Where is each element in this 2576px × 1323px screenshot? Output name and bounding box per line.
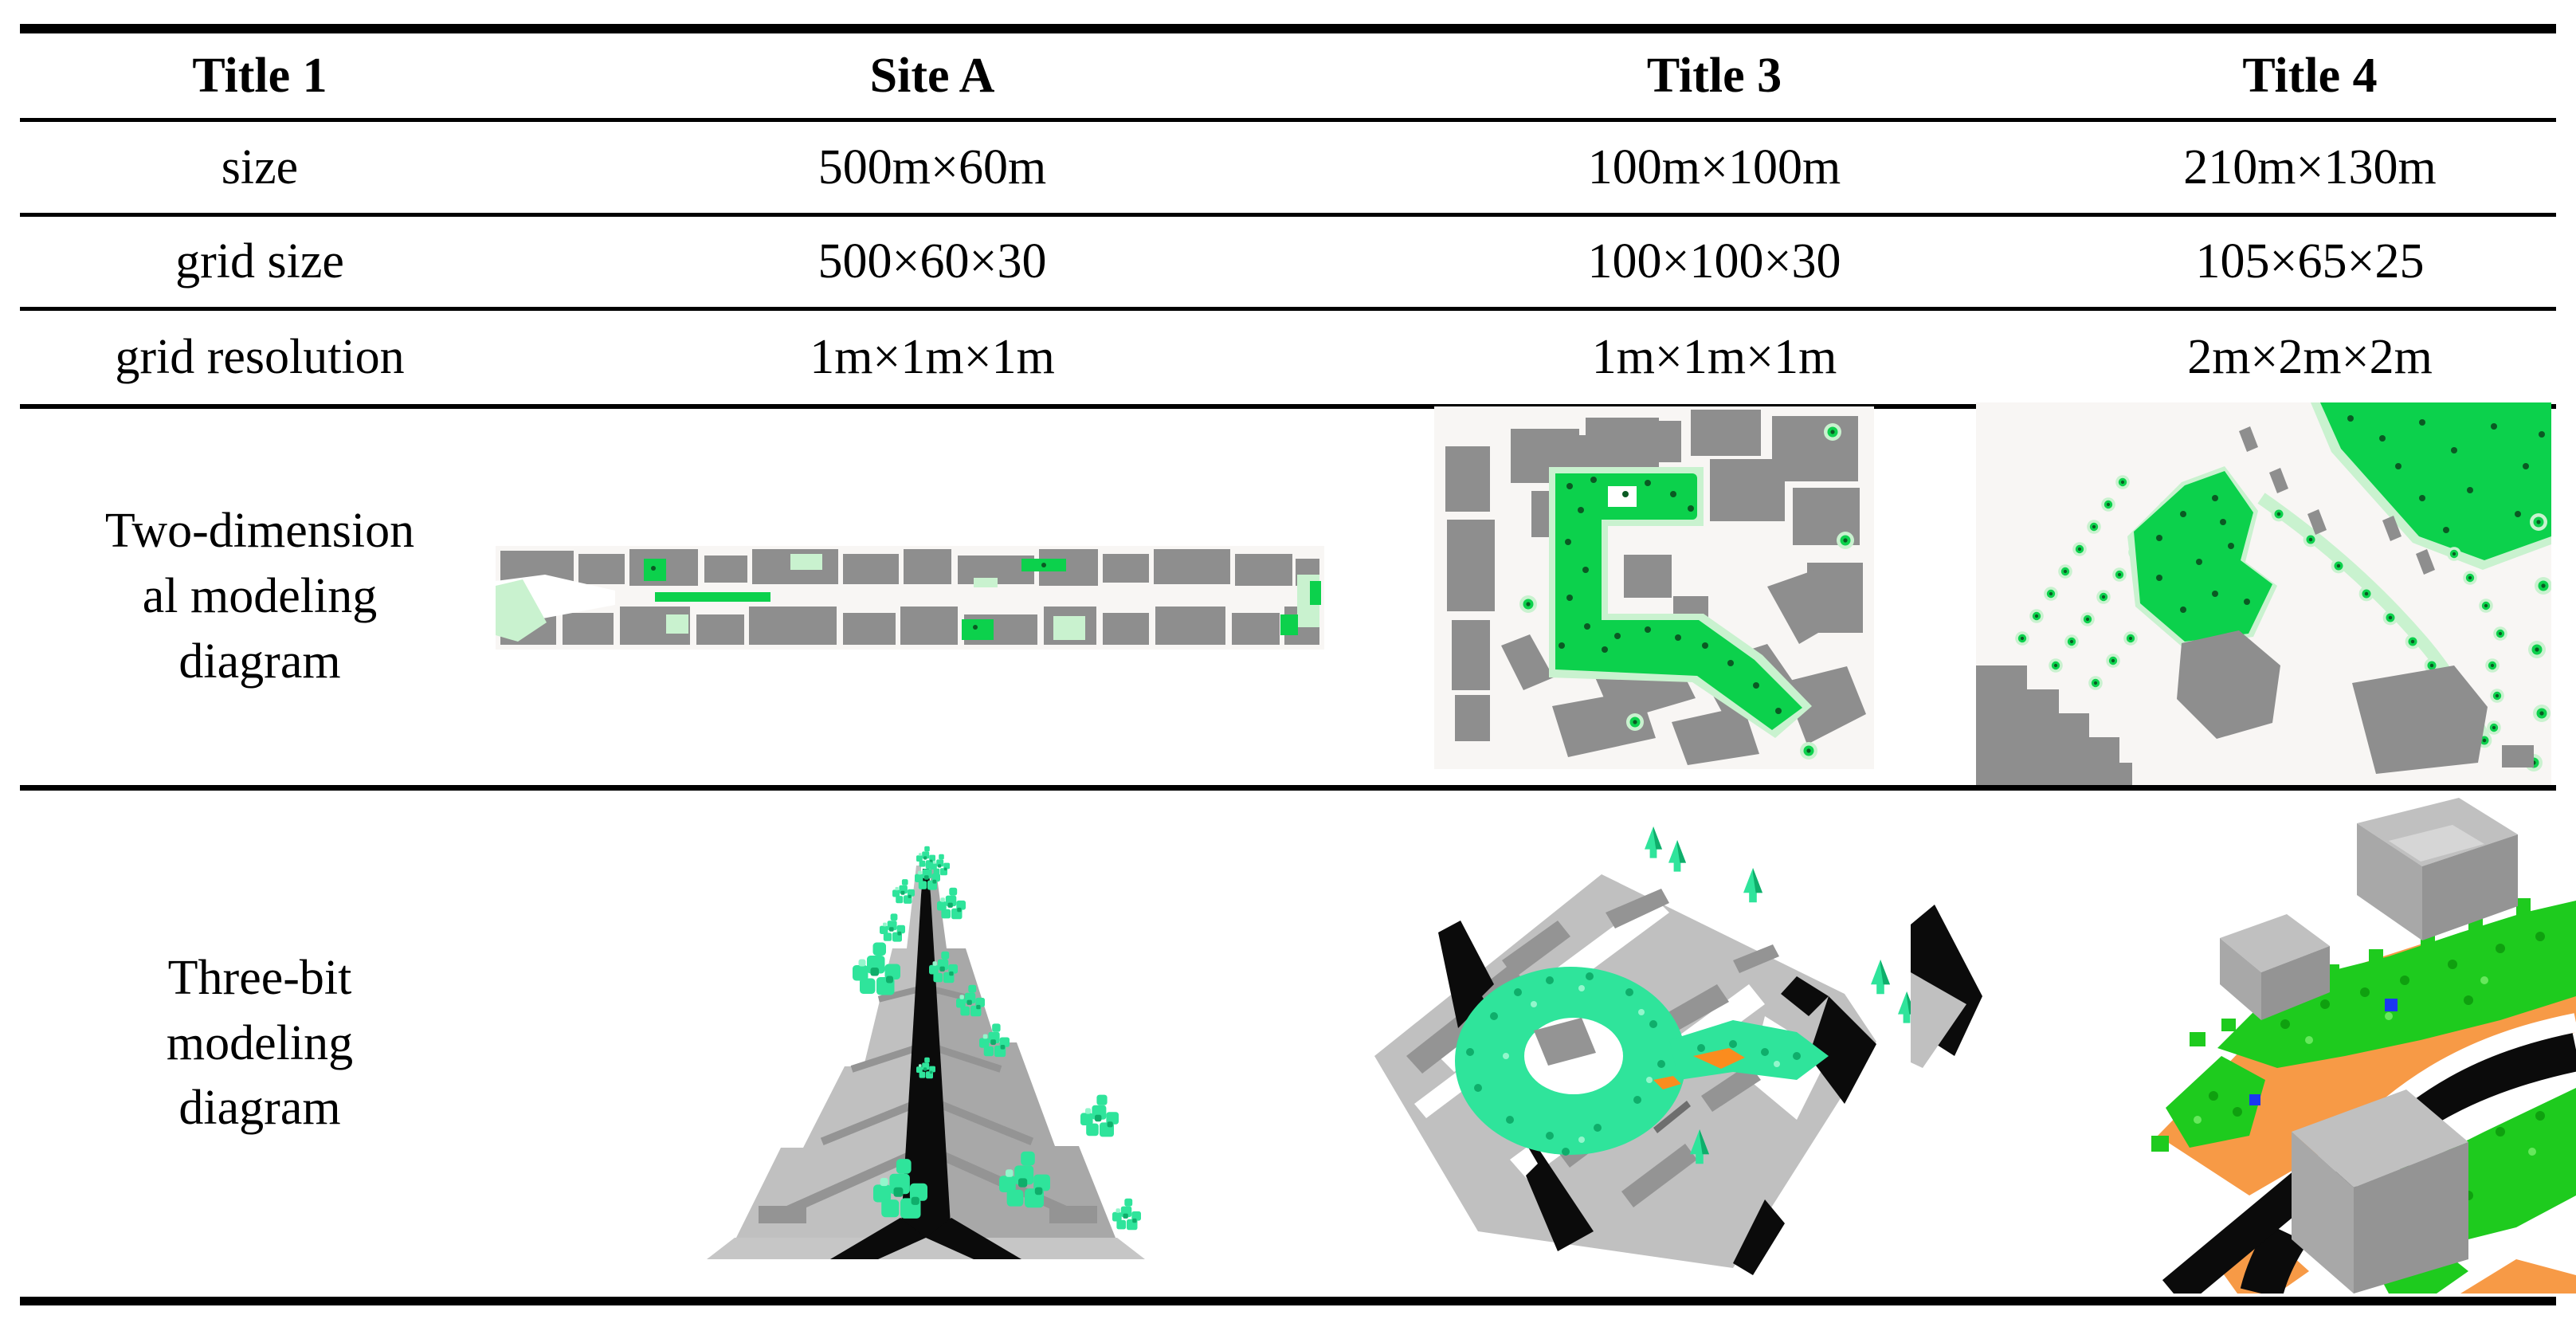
row-label-size: size <box>20 140 500 194</box>
table-row-grid-size: grid size 500×60×30 100×100×30 105×65×25 <box>20 217 2556 307</box>
table-bottom-border <box>20 1297 2556 1305</box>
title-4-3d-model-svg <box>1911 793 2576 1294</box>
table-top-border <box>20 24 2556 33</box>
title-3-2d-map-image <box>1434 406 1874 769</box>
table-row-size: size 500m×60m 100m×100m 210m×130m <box>20 122 2556 213</box>
row-label-grid-resolution: grid resolution <box>20 330 500 384</box>
cell-grid-size-site-a: 500×60×30 <box>500 234 1365 289</box>
row-label-3d-diagram: Three-bit modeling diagram <box>20 946 500 1141</box>
cell-grid-size-title-4: 105×65×25 <box>2064 234 2556 289</box>
row-label-3d-line: modeling <box>167 1011 353 1077</box>
title-4-2d-map-image <box>1976 402 2551 785</box>
cell-grid-resolution-title-3: 1m×1m×1m <box>1365 330 2064 384</box>
table-header-row: Title 1 Site A Title 3 Title 4 <box>20 33 2556 118</box>
title-4-3d-model-image <box>1911 793 2576 1294</box>
site-a-2d-map-svg <box>496 546 1324 650</box>
paper-table-figure: Title 1 Site A Title 3 Title 4 size 500m… <box>0 0 2576 1323</box>
header-cell-title-4: Title 4 <box>2064 49 2556 103</box>
cell-grid-resolution-title-4: 2m×2m×2m <box>2064 330 2556 384</box>
cell-size-title-3: 100m×100m <box>1365 140 2064 194</box>
header-cell-title-3: Title 3 <box>1365 49 2064 103</box>
header-cell-title-1: Title 1 <box>20 49 500 103</box>
site-a-2d-map-image <box>496 546 1324 650</box>
site-a-3d-model-image <box>687 803 1165 1274</box>
row-label-3d-line: Three-bit <box>168 946 352 1011</box>
cell-size-site-a: 500m×60m <box>500 140 1365 194</box>
row-label-2d-line: diagram <box>178 630 340 695</box>
row-label-grid-size: grid size <box>20 234 500 289</box>
title-3-2d-map-svg <box>1434 406 1874 769</box>
table-row-grid-resolution: grid resolution 1m×1m×1m 1m×1m×1m 2m×2m×… <box>20 311 2556 404</box>
title-3-3d-model-svg <box>1319 817 1932 1287</box>
header-cell-site-a: Site A <box>500 49 1365 103</box>
title-4-2d-map-svg <box>1976 402 2551 785</box>
cell-grid-size-title-3: 100×100×30 <box>1365 234 2064 289</box>
row-label-3d-line: diagram <box>178 1076 340 1141</box>
row-label-2d-diagram: Two-dimension al modeling diagram <box>20 499 500 694</box>
table-rule <box>20 785 2556 791</box>
title-3-3d-model-image <box>1319 817 1932 1287</box>
site-a-3d-model-svg <box>687 803 1165 1274</box>
cell-size-title-4: 210m×130m <box>2064 140 2556 194</box>
row-label-2d-line: Two-dimension <box>105 499 414 564</box>
cell-grid-resolution-site-a: 1m×1m×1m <box>500 330 1365 384</box>
row-label-2d-line: al modeling <box>143 564 377 630</box>
